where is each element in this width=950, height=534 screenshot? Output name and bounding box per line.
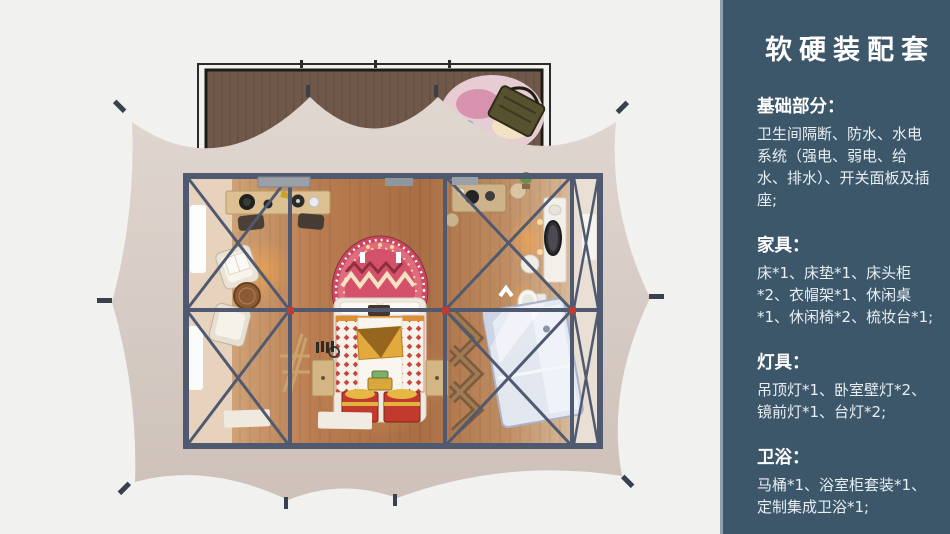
quilt-band-right: [402, 316, 424, 392]
stake-bottom-1: [284, 497, 288, 509]
section-lighting: 灯具： 吊顶灯*1、卧室壁灯*2、镜前灯*1、台灯*2;: [757, 349, 936, 423]
page: 软硬装配套 基础部分： 卫生间隔断、防水、水电系统（强电、弱电、给水、排水）、开…: [0, 0, 950, 534]
stake-right-mid: [649, 294, 664, 299]
stake-left-mid: [97, 298, 112, 303]
section-basics: 基础部分： 卫生间隔断、防水、水电系统（强电、弱电、给水、排水）、开关面板及插座…: [757, 93, 936, 211]
window-left-lower: [188, 326, 203, 390]
sink: [549, 205, 561, 215]
console-desk: [226, 191, 330, 214]
stake-top-peak-2: [434, 85, 438, 97]
mirror-lamp-1: [537, 219, 543, 225]
section-body: 马桶*1、浴室柜套装*1、定制集成卫浴*1;: [757, 474, 936, 518]
gold-throw: [357, 327, 403, 360]
mirror-lamp-2: [537, 249, 543, 255]
window-left-upper: [190, 205, 206, 273]
section-body: 吊顶灯*1、卧室壁灯*2、镜前灯*1、台灯*2;: [757, 379, 936, 423]
sidebar-title: 软硬装配套: [757, 28, 936, 67]
section-furniture: 家具： 床*1、床垫*1、床头柜*2、衣帽架*1、休闲桌*1、休闲椅*2、梳妆台…: [757, 232, 936, 328]
side-table: [234, 283, 260, 309]
section-bathroom: 卫浴： 马桶*1、浴室柜套装*1、定制集成卫浴*1;: [757, 444, 936, 518]
section-body: 卫生间隔断、防水、水电系统（强电、弱电、给水、排水）、开关面板及插座;: [757, 123, 936, 211]
tiered-box: [368, 371, 392, 390]
stool-1: [445, 213, 459, 227]
floor-mat-2: [318, 412, 372, 430]
section-heading: 卫浴：: [757, 444, 936, 469]
section-heading: 家具：: [757, 232, 936, 257]
spec-sidebar: 软硬装配套 基础部分： 卫生间隔断、防水、水电系统（强电、弱电、给水、排水）、开…: [720, 0, 950, 534]
floorplan-panel: [0, 0, 720, 534]
section-heading: 灯具：: [757, 349, 936, 374]
section-heading: 基础部分：: [757, 93, 936, 118]
section-body: 床*1、床垫*1、床头柜*2、衣帽架*1、休闲桌*1、休闲椅*2、梳妆台*1;: [757, 262, 936, 328]
kettle-2: [465, 190, 479, 204]
stake-top-peak-1: [306, 85, 310, 97]
chest-right: [384, 389, 420, 422]
stake-bottom-2: [393, 494, 397, 506]
floorplan-render: [0, 0, 720, 534]
teapot: [309, 197, 319, 207]
